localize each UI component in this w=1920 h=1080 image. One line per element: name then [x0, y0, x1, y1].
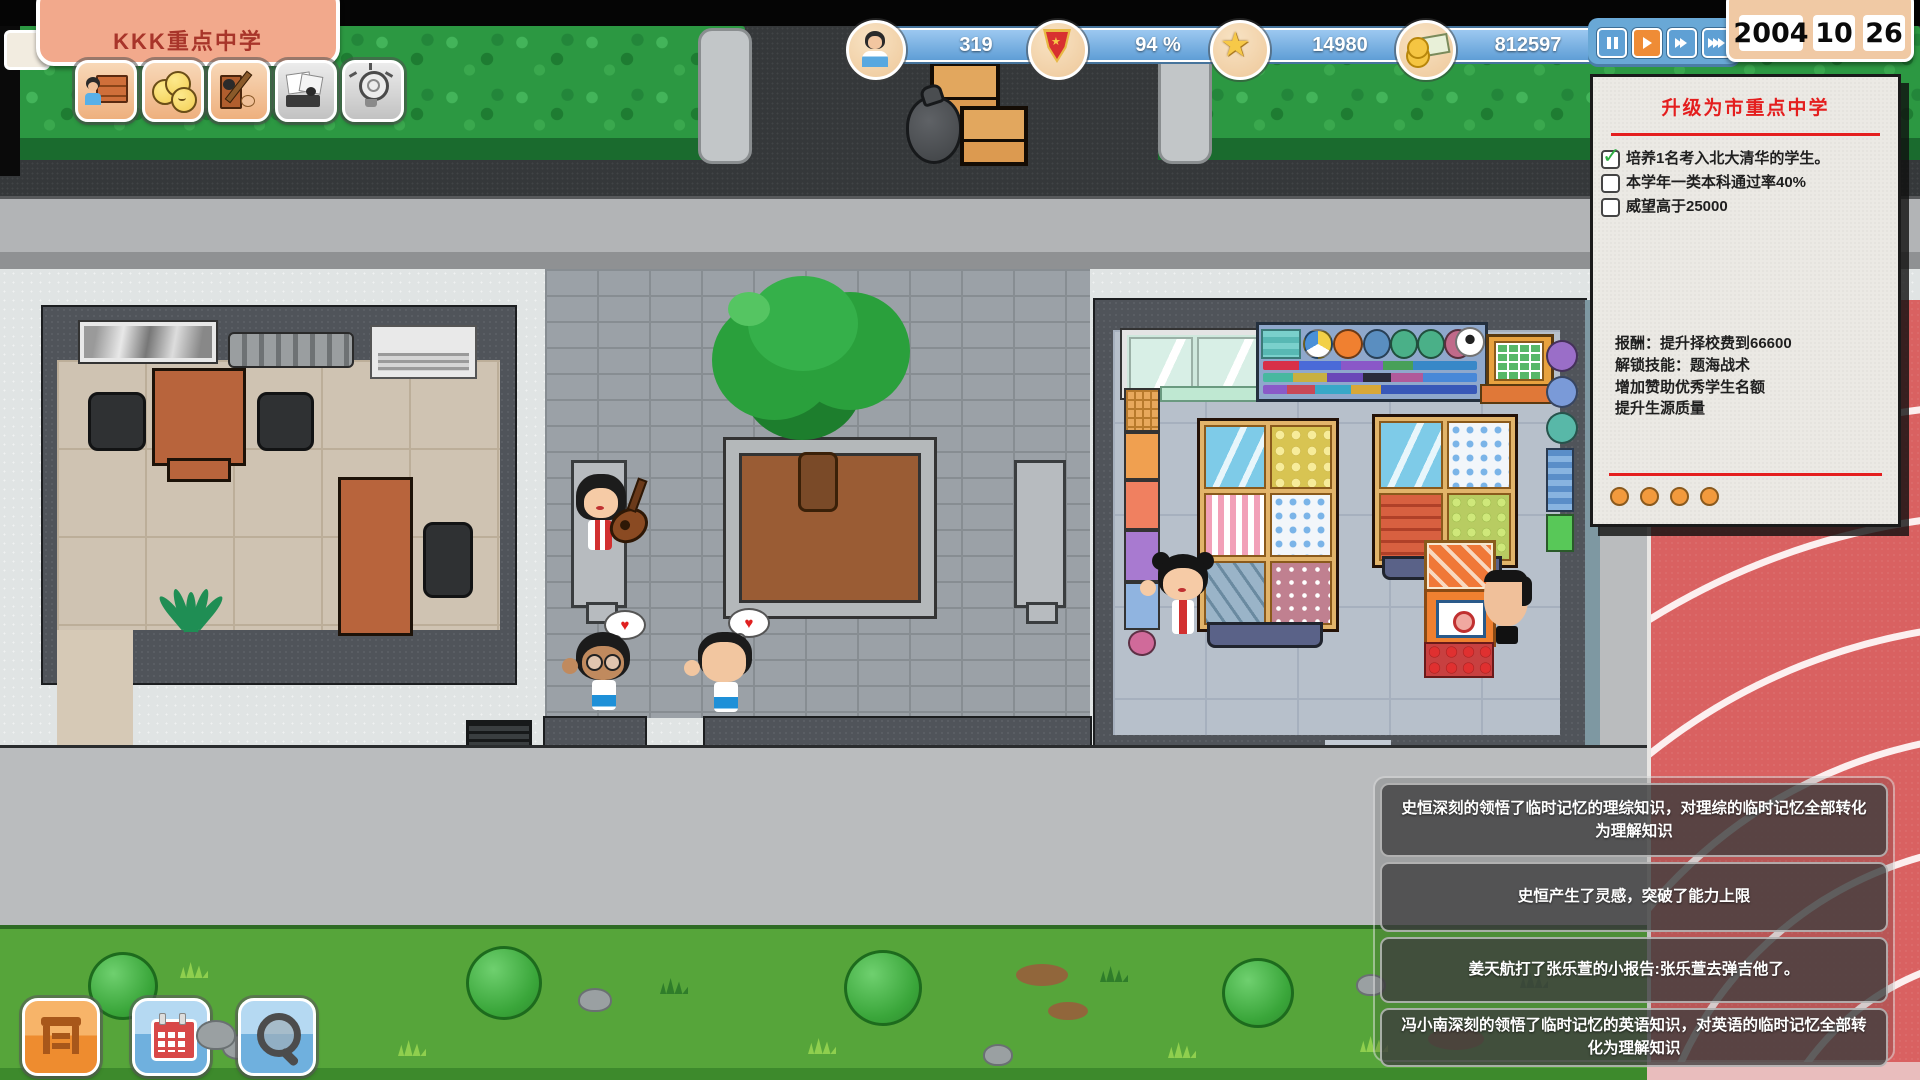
basketball	[1333, 329, 1363, 359]
glasses	[604, 654, 621, 671]
wall-locker	[1546, 514, 1574, 552]
wall-item	[1546, 340, 1578, 372]
shopkeeper-mouth	[1178, 588, 1186, 592]
produce	[1494, 341, 1544, 381]
product-strip	[1263, 373, 1477, 382]
event-message[interactable]: 冯小南深刻的领悟了临时记忆的英语知识，对英语的临时记忆全部转化为理解知识	[1380, 1008, 1888, 1067]
rock	[196, 1020, 236, 1050]
rock	[983, 1044, 1013, 1066]
checkbox-unchecked	[1601, 198, 1620, 217]
soccer-ball	[1455, 327, 1485, 357]
character-customer[interactable]	[1476, 570, 1536, 660]
volleyball	[1303, 329, 1333, 359]
bush	[844, 950, 922, 1026]
event-message-log: 史恒深刻的领悟了临时记忆的理综知识，对理综的临时记忆全部转化为理解知识 史恒产生…	[1373, 776, 1895, 1062]
checkbox-unchecked	[1601, 174, 1620, 193]
wall-item	[1546, 376, 1578, 408]
search-icon	[257, 1013, 301, 1057]
toolbar-button-reports[interactable]	[275, 60, 337, 122]
divider	[1609, 473, 1882, 476]
cardboard-box	[960, 106, 1028, 166]
student-body	[592, 680, 616, 710]
date-display: 2004 10 26	[1726, 0, 1914, 62]
tree-trunk	[798, 452, 838, 512]
sports-shelf	[1256, 322, 1488, 402]
students-value: 319	[959, 34, 992, 57]
objective-text: 本学年一类本科通过率40%	[1626, 174, 1806, 192]
play-button[interactable]	[1632, 28, 1662, 58]
students-stat-badge[interactable]	[846, 20, 906, 80]
game-screen: ♥ ♥	[0, 0, 1920, 1080]
progress-dot	[1700, 487, 1719, 506]
product-strip	[1263, 361, 1477, 370]
prestige-badge[interactable]: ★	[1210, 20, 1270, 80]
hedge-left-base	[18, 138, 745, 160]
bench	[1014, 460, 1066, 608]
radiator	[228, 332, 354, 368]
school-name: KKK重点中学	[113, 24, 263, 56]
student-hand	[684, 660, 700, 676]
office-chair	[88, 392, 146, 451]
office-chair	[257, 392, 314, 451]
store-locker	[1124, 480, 1160, 530]
customer-hair-side	[1522, 576, 1532, 606]
mission-rewards: 报酬：提升择校费到66600 解锁技能：题海战术 增加赞助优秀学生名额 提升生源…	[1615, 333, 1888, 420]
student-hand	[562, 658, 578, 674]
mission-objective: 威望高于25000	[1601, 198, 1890, 217]
cap-item	[1417, 329, 1445, 359]
store-locker	[1124, 432, 1160, 480]
reward-line: 增加赞助优秀学生名额	[1615, 377, 1888, 399]
toolbar-button-students[interactable]	[208, 60, 270, 122]
ac-unit	[370, 325, 477, 379]
date-year: 2004	[1739, 15, 1803, 51]
produce-stand	[1486, 334, 1554, 390]
school-name-banner: KKK重点中学	[36, 0, 340, 66]
office-table	[152, 368, 246, 466]
character-shopkeeper[interactable]	[1152, 552, 1218, 644]
star-icon: ★	[1220, 25, 1250, 65]
plant	[160, 588, 224, 632]
pass-rate-badge[interactable]: ★	[1028, 20, 1088, 80]
wall-picture	[80, 322, 216, 362]
event-message[interactable]: 史恒深刻的领悟了临时记忆的理综知识，对理综的临时记忆全部转化为理解知识	[1380, 783, 1888, 857]
toolbar-button-relationships[interactable]	[142, 60, 204, 122]
furniture-icon	[41, 1017, 81, 1026]
store-shelf	[1197, 418, 1339, 632]
pause-button[interactable]	[1597, 28, 1627, 58]
bench-foot	[1026, 602, 1058, 624]
hedge-end-cap	[698, 28, 752, 164]
pass-rate-value: 94 %	[1135, 34, 1181, 57]
fast-forward-button[interactable]	[1667, 28, 1697, 58]
tree-canopy	[748, 276, 858, 371]
customer-body	[1496, 626, 1518, 644]
progress-dot	[1670, 487, 1689, 506]
shopkeeper-face	[1163, 568, 1203, 600]
glasses	[586, 654, 603, 671]
product-strip	[1263, 385, 1477, 394]
character-student[interactable]	[692, 632, 758, 714]
divider	[1611, 133, 1880, 136]
shopkeeper-body	[1172, 600, 1194, 634]
bush	[1222, 958, 1294, 1028]
checkbox-checked	[1601, 150, 1620, 169]
shelf-base	[1207, 622, 1323, 648]
office-chair	[423, 522, 473, 598]
mission-objective: 培养1名考入北大清华的学生。	[1601, 150, 1890, 169]
character-student-glasses[interactable]	[570, 632, 636, 714]
rock	[578, 988, 612, 1012]
bush	[466, 946, 542, 1020]
event-message[interactable]: 姜天航打了张乐萱的小报告:张乐萱去弹吉他了。	[1380, 937, 1888, 1003]
dirt-patch	[1048, 1002, 1088, 1020]
prestige-value: 14980	[1312, 34, 1368, 57]
student-face	[702, 642, 746, 682]
money-badge[interactable]	[1396, 20, 1456, 80]
wall-locker	[1546, 448, 1574, 512]
mission-objective: 本学年一类本科通过率40%	[1601, 174, 1890, 193]
reward-line: 报酬：提升择校费到66600	[1615, 333, 1888, 355]
progress-dot	[1640, 487, 1659, 506]
toolbar-button-rooms[interactable]	[75, 60, 137, 122]
wall-item	[1546, 412, 1578, 444]
calendar-icon	[151, 1019, 197, 1061]
toolbar-button-ideas[interactable]	[342, 60, 404, 122]
cap-item	[1363, 329, 1391, 359]
build-mode-button[interactable]	[22, 998, 100, 1076]
date-month: 10	[1813, 15, 1855, 51]
shopkeeper-hand	[1140, 580, 1156, 596]
objective-text: 威望高于25000	[1626, 198, 1728, 216]
teal-stack	[1261, 329, 1301, 359]
cap-item	[1390, 329, 1418, 359]
mission-panel[interactable]: 升级为市重点中学 培养1名考入北大清华的学生。 本学年一类本科通过率40% 威望…	[1590, 74, 1901, 527]
office-table-drawer	[167, 458, 231, 482]
trash-bag	[906, 96, 962, 164]
money-value: 812597	[1495, 34, 1562, 57]
objective-text: 培养1名考入北大清华的学生。	[1626, 150, 1829, 168]
reward-line: 提升生源质量	[1615, 398, 1888, 420]
dirt-patch	[1016, 964, 1068, 986]
store-locker	[1124, 388, 1160, 432]
date-day: 26	[1863, 15, 1905, 51]
search-button[interactable]	[238, 998, 316, 1076]
mission-title: 升级为市重点中学	[1593, 93, 1898, 120]
office-desk	[338, 477, 413, 636]
character-guitar-girl[interactable]	[574, 474, 644, 566]
progress-dot	[1610, 487, 1629, 506]
counter-base	[1160, 386, 1258, 402]
tree-canopy-highlight	[728, 292, 770, 326]
reward-line: 解锁技能：题海战术	[1615, 355, 1888, 377]
event-message[interactable]: 史恒产生了灵感，突破了能力上限	[1380, 862, 1888, 932]
student-body	[714, 682, 738, 712]
time-control-bar	[1588, 18, 1740, 64]
mission-progress-dots	[1610, 487, 1719, 506]
sign-ring	[1453, 611, 1475, 633]
